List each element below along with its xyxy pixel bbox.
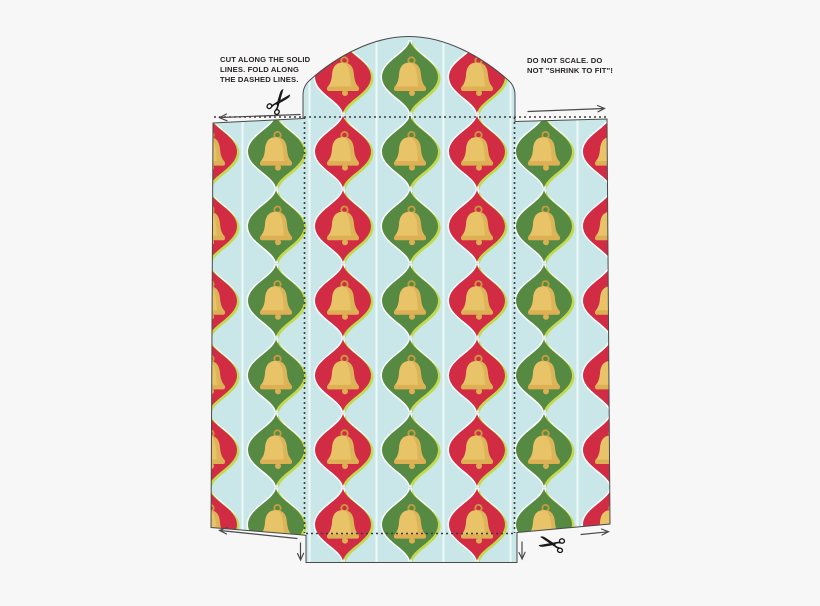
pinstripe: [376, 30, 378, 566]
arrow-down-right-icon: [519, 542, 525, 559]
arrow-bottom-right-icon: [581, 529, 609, 535]
ornament-diamond-red: [583, 41, 642, 116]
scale-warning-line2: NOT "SHRINK TO FIT"!: [527, 66, 613, 76]
arrow-right-icon: [528, 106, 605, 112]
cut-instructions: CUT ALONG THE SOLID LINES. FOLD ALONG TH…: [220, 55, 310, 85]
cut-instructions-line1: CUT ALONG THE SOLID: [220, 55, 310, 65]
scissors-icon: ✂: [530, 525, 573, 568]
pinstripe: [510, 30, 512, 566]
printable-template-page: CUT ALONG THE SOLID LINES. FOLD ALONG TH…: [0, 0, 820, 606]
arrow-down-left-icon: [298, 543, 304, 560]
bell-pattern-paper: [181, 30, 642, 566]
pinstripe: [577, 30, 579, 566]
ornament-diamond-green: [516, 41, 575, 116]
scale-warning-line1: DO NOT SCALE. DO: [527, 56, 613, 66]
cut-instructions-line2: LINES. FOLD ALONG: [220, 65, 310, 75]
pinstripe: [443, 30, 445, 566]
die-cut-template: [0, 0, 820, 606]
pinstripe: [309, 30, 311, 566]
pinstripe: [242, 30, 244, 566]
scale-warning: DO NOT SCALE. DO NOT "SHRINK TO FIT"!: [527, 56, 613, 76]
cut-instructions-line3: THE DASHED LINES.: [220, 75, 310, 85]
